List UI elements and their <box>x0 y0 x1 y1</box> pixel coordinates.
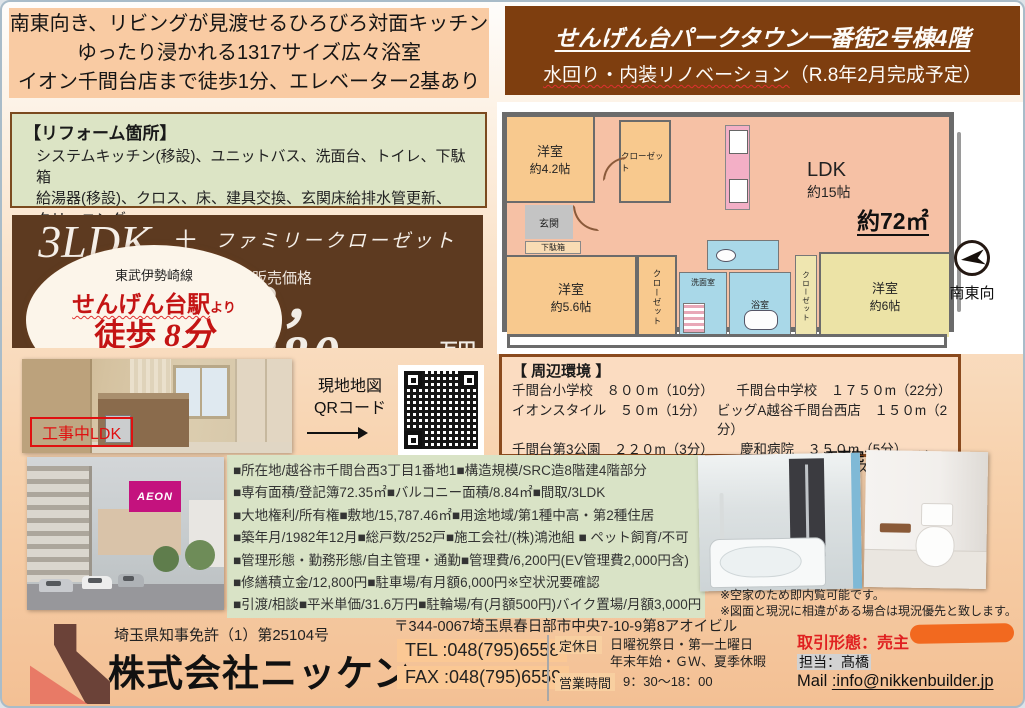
mail-row: Mail :info@nikkenbuilder.jp <box>797 672 994 691</box>
tree-icon <box>185 540 215 570</box>
headline-line: イオン千間台店まで徒歩1分、エレベーター2基あり <box>9 68 489 97</box>
redacted-highlight <box>910 623 1014 644</box>
hours-label: 営業時間 <box>555 673 615 691</box>
reform-box: 【リフォーム箇所】 システムキッチン(移設)、ユニットバス、洗面台、トイレ、下駄… <box>10 112 487 208</box>
car-icon <box>118 574 144 587</box>
layout-extra: ファミリークローゼット <box>215 231 457 252</box>
floorplan-room-4-2: 洋室 約4.2帖 <box>507 117 595 203</box>
shoebox-label: 下駄箱 <box>541 242 565 253</box>
note-line: ※空家のため即内覧可能です。 <box>720 588 1017 604</box>
facing-direction-label: 南東向 <box>940 282 1004 303</box>
detail-line: ■所在地/越谷市千間台西3丁目1番地1■構造規模/SRC造8階建4階部分 <box>233 460 699 482</box>
tel-fax-block: TEL :048(795)6558 FAX :048(795)6559 <box>397 639 569 693</box>
fax-number: FAX :048(795)6559 <box>397 666 569 689</box>
floorplan-room-5-6: 洋室 約5.6帖 <box>507 255 637 337</box>
renovation-text: 水回り・内装リノベーション <box>543 65 790 86</box>
surroundings-box: 【 周辺環境 】 千間台小学校 ８００m（10分） 千間台中学校 １７５０m（2… <box>499 354 961 457</box>
surroundings-title: 【 周辺環境 】 <box>512 360 948 381</box>
room-size: 約5.6帖 <box>551 298 592 315</box>
photo-toilet-tank <box>921 503 953 527</box>
room-name: 洋室 <box>558 279 584 298</box>
ldk-name: LDK <box>807 159 851 182</box>
walk-minutes: 8分 <box>164 318 214 348</box>
property-details-box: ■所在地/越谷市千間台西3丁目1番地1■構造規模/SRC造8階建4階部分 ■専有… <box>227 455 705 618</box>
ldk-label: LDK 約15帖 <box>807 159 851 202</box>
hours-value: 9：30～18：00 <box>623 673 713 691</box>
floorplan-closet-3: クローゼット <box>795 255 817 337</box>
tel-number: TEL :048(795)6558 <box>397 639 567 662</box>
surroundings-row: 千間台小学校 ８００m（10分） 千間台中学校 １７５０m（22分） <box>512 381 948 401</box>
floorplan-unit-outline: 洋室 約4.2帖 クローゼット 玄関 下駄箱 LDK 約15帖 約72㎡ 洋室 <box>502 112 954 332</box>
room-size: 約6帖 <box>870 297 901 314</box>
holiday-label: 定休日 <box>555 636 602 654</box>
door-arc-icon <box>573 205 599 231</box>
detail-line: ■大地権利/所有権■敷地/15,787.46㎡■用途地域/第1種中高・第2種住居 <box>233 505 699 527</box>
qr-finder-icon <box>460 371 478 389</box>
company-logo <box>30 624 110 704</box>
renovation-subtitle: 水回り・内装リノベーション（R.8年2月完成予定） <box>505 60 1020 87</box>
qr-dot <box>467 378 472 383</box>
total-area-label: 約72㎡ <box>857 209 929 236</box>
detail-line: ■引渡/相談■平米単価/31.6万円■駐輪場/有(月額500円)バイク置場/月額… <box>233 594 699 616</box>
photo-closet-doors <box>235 359 292 442</box>
floorplan-shoebox: 下駄箱 <box>525 241 581 254</box>
map-label-line: 現地地図 <box>302 376 398 398</box>
bathroom-photo <box>698 453 862 592</box>
qr-finder-icon <box>404 431 422 449</box>
closet-label: クローゼット <box>801 271 812 322</box>
headline-box: 南東向き、リビングが見渡せるひろびろ対面キッチン ゆったり浸かれる1317サイズ… <box>9 8 489 98</box>
tree-icon <box>153 546 179 572</box>
kitchen-counter-icon <box>725 125 750 210</box>
agent-name: 担当：髙橋 <box>797 652 871 672</box>
photo-shelf <box>879 523 911 533</box>
agent-text: 担当：髙橋 <box>797 654 871 670</box>
ldk-size: 約15帖 <box>807 182 851 202</box>
floorplan-toilet <box>707 240 779 270</box>
license-number: 埼玉県知事免許（1）第25104号 <box>114 624 329 645</box>
reform-line: システムキッチン(移設)、ユニットバス、洗面台、トイレ、下駄箱 <box>36 146 473 188</box>
ldk-construction-photo: 工事中LDK <box>22 359 292 453</box>
compass-arrow-icon <box>960 249 986 268</box>
ldk-photo-label: 工事中LDK <box>30 417 133 447</box>
room-size: 約4.2帖 <box>530 160 571 177</box>
station-name: せんげん台駅 <box>72 292 210 317</box>
completion-date: （R.8年2月完成予定） <box>790 65 982 86</box>
detail-line: ■管理形態・勤務形態/自主管理・通勤■管理費/6,200円(EV管理費2,000… <box>233 550 699 572</box>
qr-dot <box>411 438 416 443</box>
rail-line-name: 東武伊勢崎線 <box>26 265 282 284</box>
map-qr-code <box>398 365 484 455</box>
walk-time-row: 徒歩 8分 <box>26 319 282 348</box>
holiday-line: 日曜祝祭日・第一土曜日 <box>610 636 766 653</box>
detail-line: ■築年月/1982年12月■総戸数/252戸■施工会社/(株)鴻池組 ■ ペット… <box>233 527 699 549</box>
building-exterior-photo: AEON <box>27 457 224 610</box>
qr-dot <box>411 378 416 383</box>
photo-apartment-building <box>27 466 92 582</box>
car-icon <box>82 576 112 589</box>
laundry-hatch-icon <box>683 303 705 333</box>
floorplan-genkan: 玄関 <box>525 205 573 239</box>
poi-distance: 千間台小学校 ８００m（10分） <box>512 381 736 401</box>
photo-grab-bar <box>720 493 725 542</box>
map-label-line: QRコード <box>302 398 398 420</box>
arrow-right-icon <box>307 432 359 434</box>
transaction-type: 取引形態：売主 <box>797 629 909 653</box>
floorplan-closet-2: クローゼット <box>637 255 677 337</box>
poi-distance: イオンスタイル ５０m（1分） <box>512 401 717 440</box>
business-hours-block: 定休日 日曜祝祭日・第一土曜日 年末年始・ＧＷ、夏季休暇 営業時間 9：30～1… <box>555 636 766 694</box>
toilet-photo <box>864 450 988 589</box>
bathtub-icon <box>744 310 778 330</box>
door-arc-icon <box>603 157 627 181</box>
property-name: せんげん台パークタウン一番街2号棟4階 <box>505 19 1020 53</box>
detail-line: ■専有面積/登記簿72.35㎡■バルコニー面積/8.84㎡■間取/3LDK <box>233 482 699 504</box>
detail-line: ■修繕積立金/12,800円■駐車場/有月額6,000円※空状況要確認 <box>233 572 699 594</box>
footer-divider <box>547 635 549 701</box>
mail-address-link[interactable]: :info@nikkenbuilder.jp <box>832 672 994 690</box>
note-line: ※図面と現況に相違がある場合は現況優先と致します。 <box>720 604 1017 620</box>
company-address: 〒344-0067埼玉県春日部市中央7-10-9第8アオイビル <box>394 615 737 636</box>
holiday-value: 日曜祝祭日・第一土曜日 年末年始・ＧＷ、夏季休暇 <box>610 636 766 670</box>
property-title-box: せんげん台パークタウン一番街2号棟4階 水回り・内装リノベーション（R.8年2月… <box>505 6 1020 95</box>
price-unit: 万円 <box>433 336 483 348</box>
closet-label: クローゼット <box>651 269 663 326</box>
headline-line: 南東向き、リビングが見渡せるひろびろ対面キッチン <box>9 10 489 39</box>
map-qr-label: 現地地図 QRコード <box>302 376 398 420</box>
compass-icon <box>954 240 990 276</box>
offer-box: 3LDK＋ファミリークローゼット 販売価格 2，280 万円 （税込） 東武伊勢… <box>12 215 483 348</box>
floorplan-washroom: 洗面室 <box>679 272 727 337</box>
genkan-label: 玄関 <box>539 215 559 230</box>
floorplan-bath: 浴室 <box>729 272 791 337</box>
floorplan-balcony <box>507 334 947 348</box>
car-icon <box>39 579 73 592</box>
toilet-icon <box>716 249 736 262</box>
qr-pattern <box>404 371 478 449</box>
station-name-row: せんげん台駅より <box>26 285 282 319</box>
flyer-page: 南東向き、リビングが見渡せるひろびろ対面キッチン ゆったり浸かれる1317サイズ… <box>0 0 1025 708</box>
headline-line: ゆったり浸かれる1317サイズ広々浴室 <box>9 39 489 68</box>
company-name: 株式会社ニッケン <box>108 643 411 697</box>
floorplan: 洋室 約4.2帖 クローゼット 玄関 下駄箱 LDK 約15帖 約72㎡ 洋室 <box>497 102 1025 354</box>
photo-bathtub <box>709 538 826 589</box>
poi-distance: 千間台中学校 １７５０m（22分） <box>736 381 948 401</box>
floorplan-room-6: 洋室 約6帖 <box>819 252 949 337</box>
station-suffix: より <box>210 300 236 315</box>
price-row: 2，280 万円 （税込） <box>250 279 483 348</box>
mail-label: Mail <box>797 672 832 690</box>
poi-distance: ビッグA越谷千間台西店 １５０m（2分） <box>717 401 948 440</box>
washroom-label: 洗面室 <box>691 277 715 288</box>
reform-title: 【リフォーム箇所】 <box>24 119 473 144</box>
reform-line: 給湯器(移設)、クロス、床、建具交換、玄関床給排水管更新、 <box>36 188 473 209</box>
closet-label: クローゼット <box>621 150 669 174</box>
aeon-sign: AEON <box>129 481 180 512</box>
holiday-line: 年末年始・ＧＷ、夏季休暇 <box>610 653 766 670</box>
room-name: 洋室 <box>872 278 898 297</box>
walk-prefix: 徒歩 <box>94 318 156 348</box>
room-name: 洋室 <box>537 141 563 160</box>
qr-finder-icon <box>404 371 422 389</box>
disclaimer-notes: ※空家のため即内覧可能です。 ※図面と現況に相違がある場合は現況優先と致します。 <box>720 588 1017 619</box>
surroundings-row: イオンスタイル ５０m（1分） ビッグA越谷千間台西店 １５０m（2分） <box>512 401 948 440</box>
